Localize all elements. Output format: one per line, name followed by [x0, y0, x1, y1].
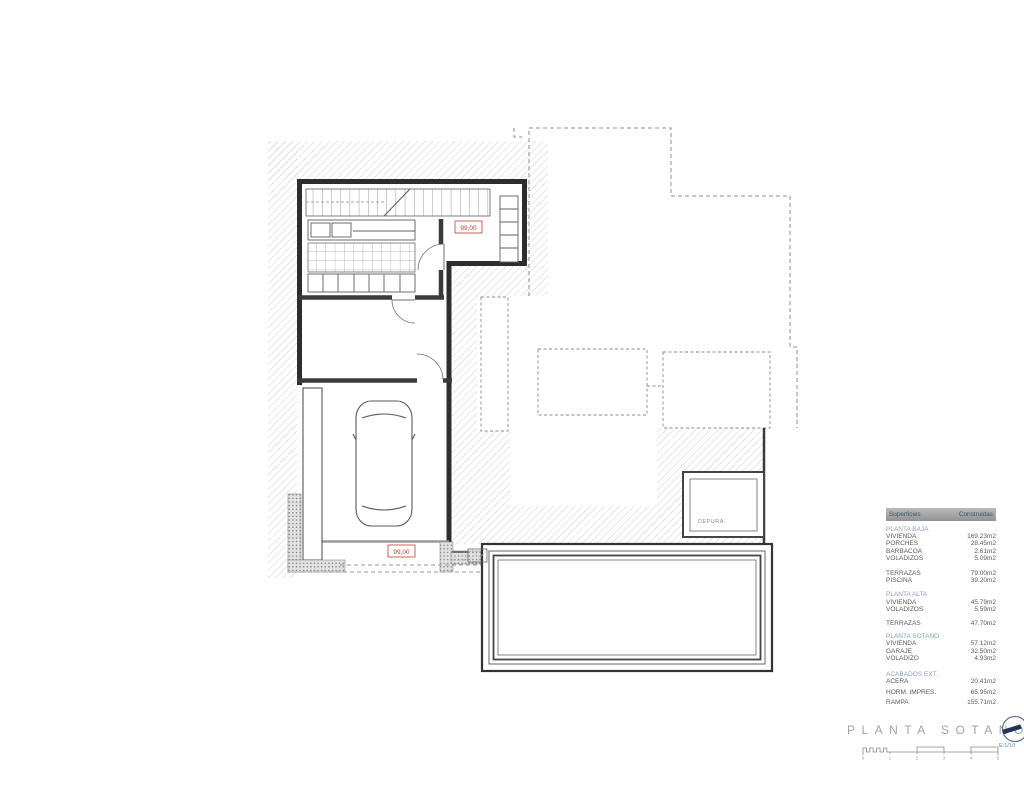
level-label-upper: 99,00: [455, 221, 482, 233]
floor-plan-drawing: DEPURA. 99,00 99,00: [0, 0, 1024, 800]
logo-bar: [1003, 727, 1021, 733]
header-construidas: Construidas: [959, 511, 993, 518]
table-row: VOLADIZOS5.59m2: [886, 606, 996, 613]
table-row: VOLADIZOS5.09m2: [886, 555, 996, 562]
table-block-planta-sotano: PLANTA SOTANO VIVIENDA57.12m2 GARAJE32.5…: [886, 633, 996, 662]
scale-tick-labels: 0 1 2 3 4 5: [862, 756, 1000, 761]
table-row: BARBACOA2.61m2: [886, 548, 996, 555]
row-label: VIVIENDA: [886, 599, 916, 606]
row-label: ACERA: [886, 678, 908, 685]
level-label-upper-text: 99,00: [460, 225, 477, 232]
block-title: PLANTA BAJA: [886, 526, 996, 533]
storage-grid-floor: [308, 243, 415, 272]
header-superficies: Superficies: [889, 511, 921, 518]
row-value: 4.93m2: [974, 655, 996, 662]
row-value: 79.00m2: [971, 570, 996, 577]
areas-table: Superficies Construidas PLANTA BAJA VIVI…: [886, 508, 996, 706]
upper-floor-dashed-outline: [514, 128, 797, 428]
scale-tick: 0: [862, 756, 865, 761]
row-value: 39.20m2: [971, 577, 996, 584]
table-block-terrazas-alta: TERRAZAS47.70m2: [886, 620, 996, 627]
depura-room: DEPURA.: [683, 472, 764, 537]
scale-tick: 3: [943, 756, 946, 761]
row-value: 57.12m2: [971, 640, 996, 647]
block-title: PLANTA ALTA: [886, 591, 996, 598]
closet-column: [500, 196, 518, 262]
row-label: TERRAZAS: [886, 570, 921, 577]
scale-tick: 2: [916, 756, 919, 761]
row-label: VOLADIZOS: [886, 555, 923, 562]
table-block-planta-baja: PLANTA BAJA VIVIENDA169.23m2 PORCHES28.4…: [886, 526, 996, 562]
table-block-acabados-ext: ACABADOS EXT. ACERA20.41m2 HORM. IMPRES.…: [886, 671, 996, 706]
level-label-lower: 99,00: [388, 545, 415, 557]
row-label: RAMPA: [886, 699, 909, 706]
shelf-unit: [308, 220, 415, 240]
scale-tick: 5: [997, 756, 1000, 761]
scale-bar: 0 1 2 3 4 5: [858, 740, 1008, 764]
table-row: ACERA20.41m2: [886, 678, 996, 685]
row-label: PISCINA: [886, 577, 912, 584]
row-value: 2.61m2: [974, 548, 996, 555]
row-label: VOLADIZO: [886, 655, 919, 662]
table-row: TERRAZAS47.70m2: [886, 620, 996, 627]
table-row: VIVIENDA45.79m2: [886, 599, 996, 606]
table-block-terrazas-piscina: TERRAZAS79.00m2 PISCINA39.20m2: [886, 570, 996, 584]
row-label: VIVIENDA: [886, 640, 916, 647]
row-label: PORCHES: [886, 540, 918, 547]
table-row: RAMPA155.71m2: [886, 699, 996, 706]
row-value: 65.95m2: [971, 689, 996, 696]
table-row: VOLADIZO4.93m2: [886, 655, 996, 662]
row-label: BARBACOA: [886, 548, 922, 555]
areas-table-header: Superficies Construidas: [886, 508, 996, 521]
row-value: 28.45m2: [971, 540, 996, 547]
row-value: 47.70m2: [971, 620, 996, 627]
row-value: 5.59m2: [974, 606, 996, 613]
scale-tick: 1: [889, 756, 892, 761]
wardrobe-row: [308, 274, 415, 292]
upper-floor-room-projections: [481, 297, 770, 431]
table-row: PISCINA39.20m2: [886, 577, 996, 584]
table-row: TERRAZAS79.00m2: [886, 570, 996, 577]
scale-label: E:1/10: [999, 743, 1015, 749]
pool: [452, 544, 772, 671]
table-row: PORCHES28.45m2: [886, 540, 996, 547]
block-title: PLANTA SOTANO: [886, 633, 996, 640]
row-label: TERRAZAS: [886, 620, 921, 627]
depura-label: DEPURA.: [698, 519, 726, 525]
table-block-planta-alta: PLANTA ALTA VIVIENDA45.79m2 VOLADIZOS5.5…: [886, 591, 996, 613]
table-row: VIVIENDA169.23m2: [886, 533, 996, 540]
row-value: 45.79m2: [971, 599, 996, 606]
table-row: HORM. IMPRES.65.95m2: [886, 689, 996, 696]
scale-tick: 4: [970, 756, 973, 761]
row-label: VOLADIZOS: [886, 606, 923, 613]
row-label: HORM. IMPRES.: [886, 689, 936, 696]
row-value: 155.71m2: [967, 699, 996, 706]
row-value: 32.50m2: [971, 648, 996, 655]
row-value: 5.09m2: [974, 555, 996, 562]
table-row: GARAJE32.50m2: [886, 648, 996, 655]
level-label-lower-text: 99,00: [393, 549, 410, 556]
table-row: VIVIENDA57.12m2: [886, 640, 996, 647]
row-value: 20.41m2: [971, 678, 996, 685]
row-label: GARAJE: [886, 648, 912, 655]
drawing-sheet: DEPURA. 99,00 99,00 Superficies: [0, 0, 1024, 800]
row-label: VIVIENDA: [886, 533, 916, 540]
planter-strip: [303, 388, 322, 560]
block-title: ACABADOS EXT.: [886, 671, 996, 678]
staircase: [306, 189, 490, 216]
row-value: 169.23m2: [967, 533, 996, 540]
